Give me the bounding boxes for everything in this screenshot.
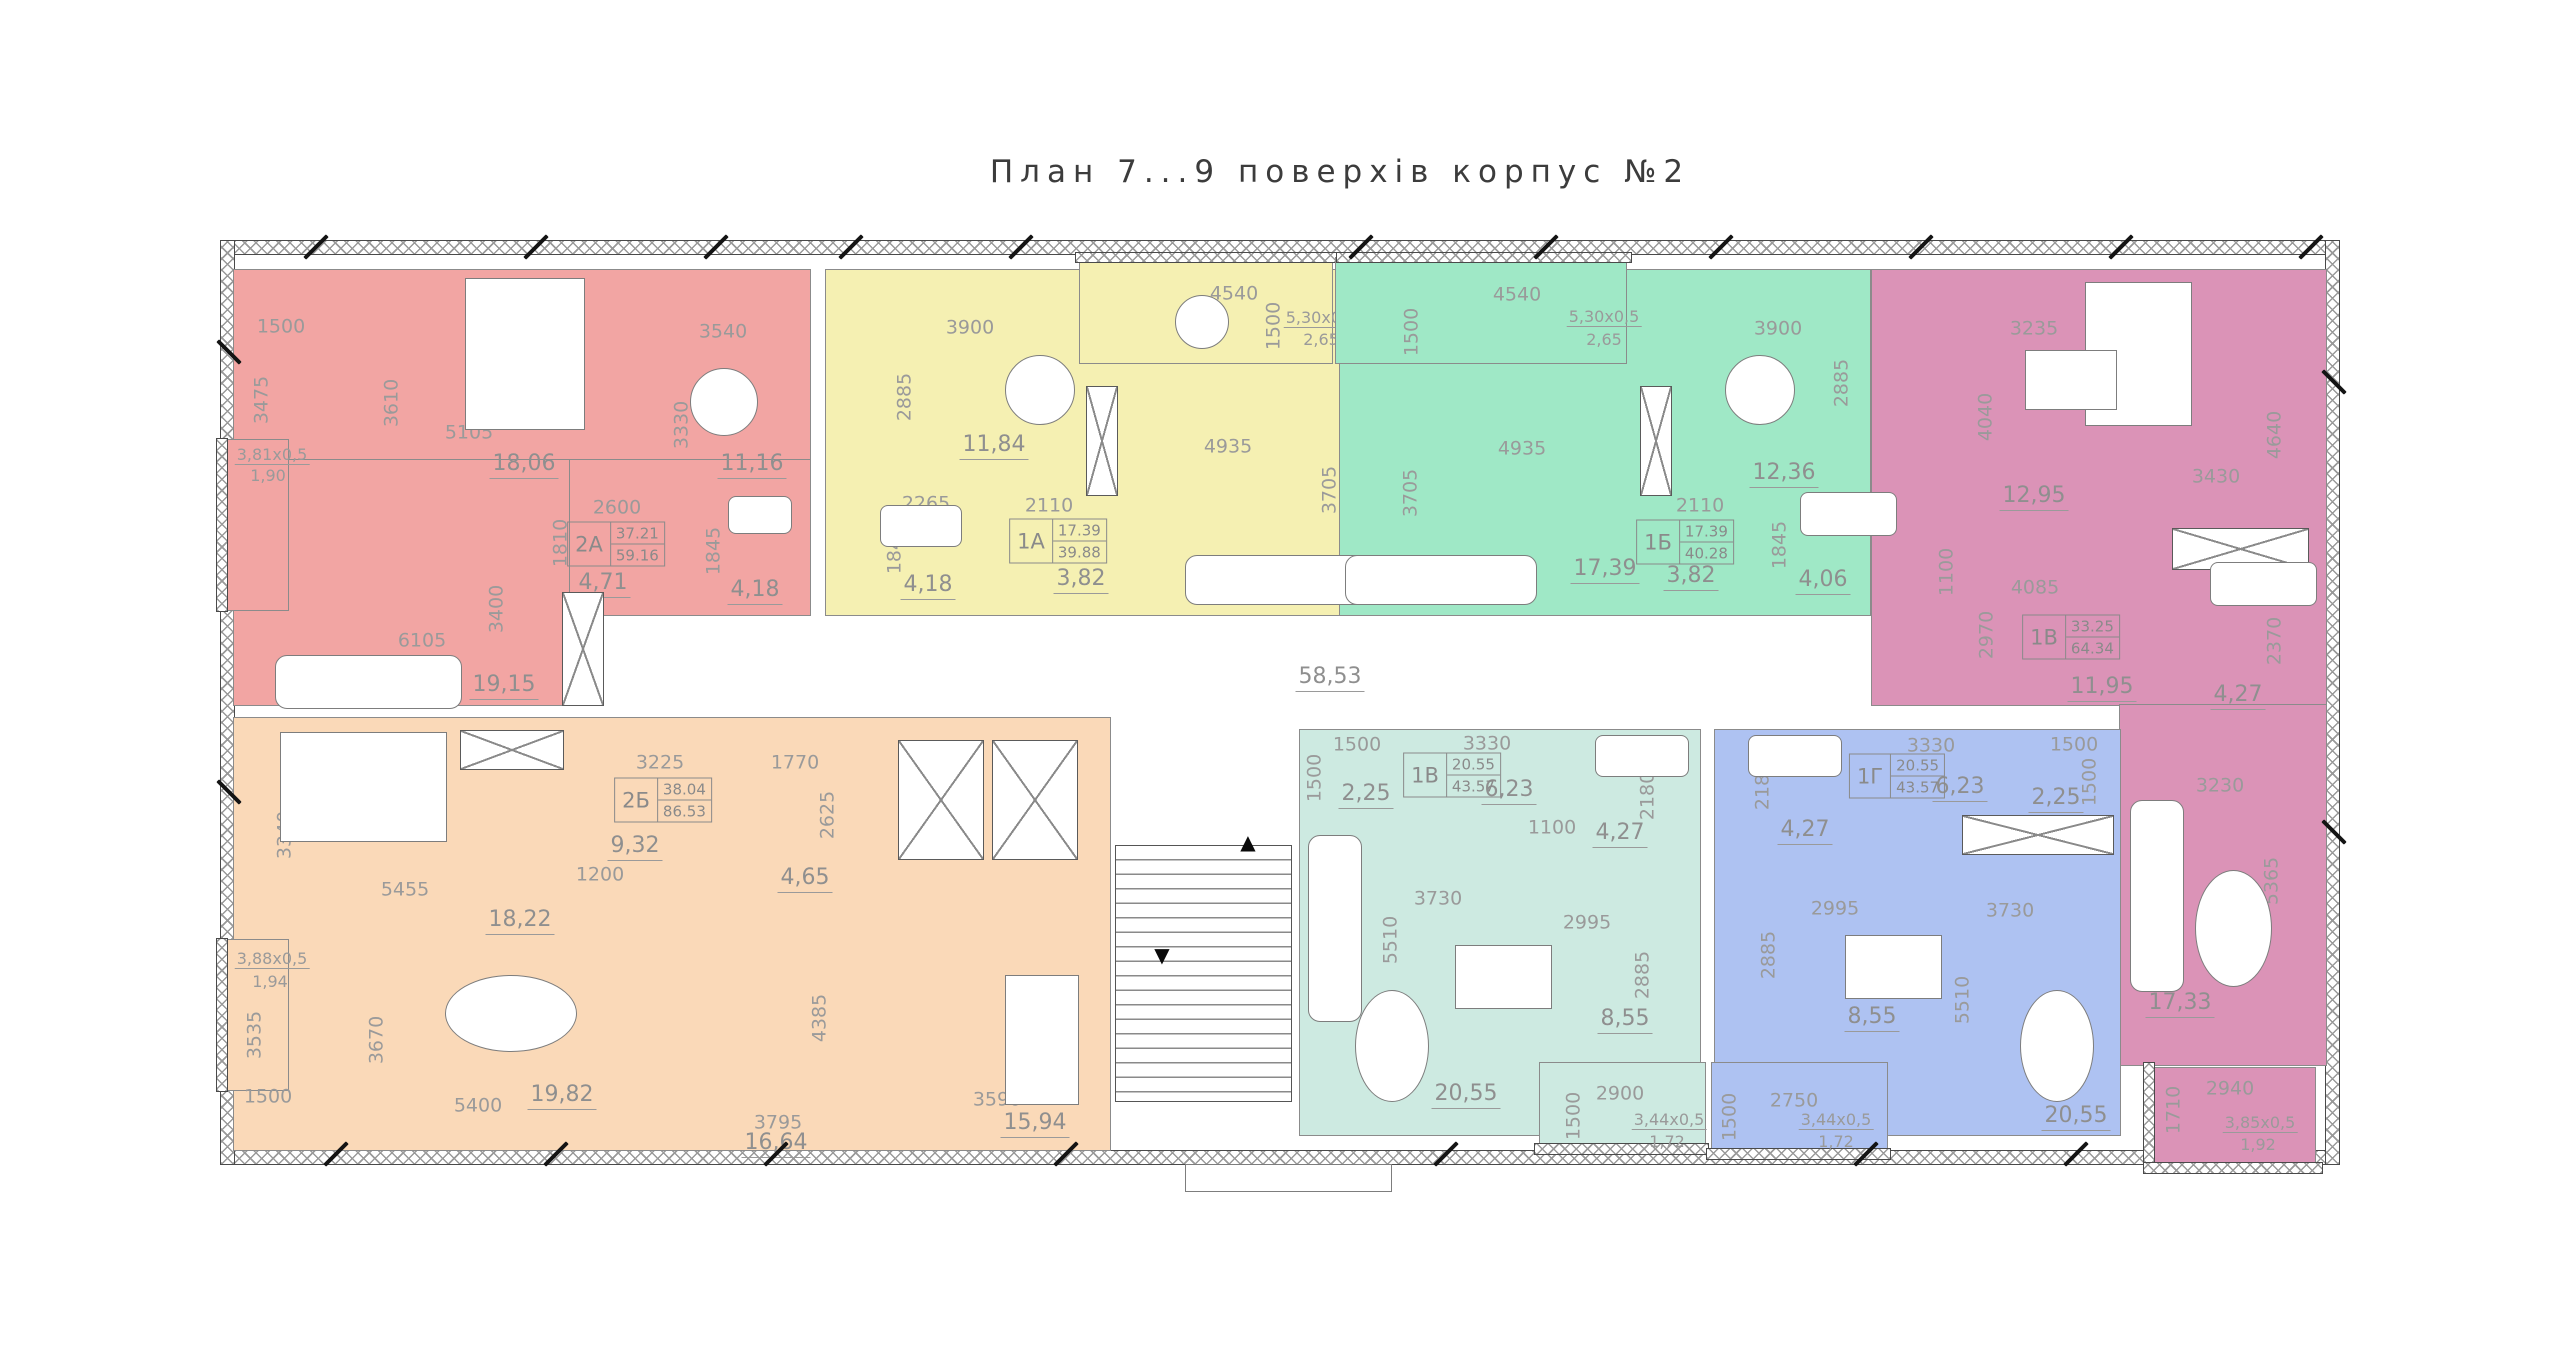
bathtub-symbol: [880, 505, 962, 547]
elevator-shaft: [992, 740, 1078, 860]
total-area-value: 86.53: [658, 801, 711, 822]
dim-label: 1500: [1721, 1093, 1740, 1141]
total-area-value: 39.88: [1053, 542, 1106, 563]
dim-label: 2995: [1811, 900, 1859, 919]
sofa-symbol: [2130, 800, 2184, 992]
room-area-label: 4,65: [778, 867, 833, 893]
dim-label: 2885: [896, 373, 915, 421]
dining-table-symbol: [1005, 975, 1079, 1105]
dim-label: 4640: [2266, 411, 2285, 459]
elevator-shaft: [898, 740, 984, 860]
room-area-label: 4,18: [728, 579, 783, 605]
bed-symbol: [280, 732, 447, 842]
balcony-wall: [1336, 252, 1632, 263]
dim-label: 3705: [1402, 469, 1421, 517]
dim-label: 6105: [398, 632, 446, 651]
dim-label: 1500: [1333, 736, 1381, 755]
dim-label: 1845: [1771, 521, 1790, 569]
apartment-id: 1Б: [1637, 521, 1679, 564]
room-area-label: 20,55: [1432, 1083, 1501, 1109]
balcony-size-label: 3,85x0,5: [2223, 1115, 2298, 1133]
room-area-label: 11,16: [718, 453, 787, 479]
table-symbol: [1175, 295, 1229, 349]
room-area-label: 20,55: [2042, 1105, 2111, 1131]
bed-symbol: [465, 278, 585, 430]
room-area-label: 12,36: [1750, 462, 1819, 488]
floor-plan-canvas: План 7...9 поверхів корпус №2 1500 3475 …: [0, 0, 2560, 1351]
table-symbol: [690, 368, 758, 436]
dim-label: 2180: [1639, 772, 1658, 820]
room-area-label: 4,27: [1778, 819, 1833, 845]
room-area-label: 8,55: [1598, 1008, 1653, 1034]
total-area-value: 59.16: [611, 545, 664, 566]
dim-label: 3235: [2010, 320, 2058, 339]
balcony-wall: [216, 438, 228, 612]
room-area-label: 4,27: [2211, 684, 2266, 710]
balcony-wall: [2143, 1062, 2155, 1174]
dim-label: 3225: [636, 754, 684, 773]
room-area-label: 4,18: [901, 574, 956, 600]
dim-label: 2940: [2206, 1080, 2254, 1099]
balcony-wall: [2143, 1162, 2323, 1174]
balcony-area-label: 2,65: [1303, 332, 1339, 348]
apartment-id: 1Г: [1850, 755, 1890, 798]
dim-label: 2970: [1978, 611, 1997, 659]
dim-label: 3900: [946, 319, 994, 338]
room-area-label: 4,06: [1796, 569, 1851, 595]
dim-label: 2885: [1833, 359, 1852, 407]
dim-label: 1770: [771, 754, 819, 773]
rug-symbol: [1355, 990, 1429, 1102]
dim-label: 1100: [1938, 548, 1957, 596]
total-area-value: 64.34: [2066, 638, 2119, 659]
dim-label: 2885: [1634, 951, 1653, 999]
balcony-size-label: 3,44x0,5: [1632, 1112, 1707, 1130]
apartment-1G-stat-box: 1Г 20.5543.57: [1849, 754, 1945, 799]
dim-label: 4085: [2011, 579, 2059, 598]
dim-label: 4540: [1493, 286, 1541, 305]
dim-label: 2370: [2266, 617, 2285, 665]
dim-label: 2750: [1770, 1092, 1818, 1111]
dining-table-symbol: [2025, 350, 2117, 410]
living-area-value: 20.55: [1447, 754, 1500, 776]
stairs-up-arrow-icon: ▲: [1240, 830, 1255, 854]
dim-label: 1500: [1265, 302, 1284, 350]
dim-label: 5455: [381, 881, 429, 900]
balcony-size-label: 3,81x0,5: [235, 447, 310, 465]
apartment-id: 1А: [1010, 520, 1052, 563]
total-area-value: 43.57: [1447, 776, 1500, 797]
dim-label: 5400: [454, 1097, 502, 1116]
living-area-value: 20.55: [1891, 755, 1944, 777]
vent-shaft: [1086, 386, 1118, 496]
rug-symbol: [2020, 990, 2094, 1102]
dining-table-symbol: [1845, 935, 1942, 999]
dim-label: 2110: [1025, 497, 1073, 516]
room-area-label: 2,25: [1339, 783, 1394, 809]
living-area-value: 17.39: [1053, 520, 1106, 542]
dim-label: 4385: [811, 994, 830, 1042]
dim-label: 2900: [1596, 1085, 1644, 1104]
room-area-label: 3,82: [1054, 568, 1109, 594]
dim-label: 1500: [257, 318, 305, 337]
dim-label: 3430: [2192, 468, 2240, 487]
wardrobe-symbol: [460, 730, 564, 770]
dim-label: 3230: [2196, 777, 2244, 796]
sofa-symbol: [275, 655, 462, 709]
apartment-1A-stat-box: 1А 17.3939.88: [1009, 519, 1107, 564]
dim-label: 3730: [1986, 902, 2034, 921]
room-area-label: 19,82: [528, 1084, 597, 1110]
living-area-value: 17.39: [1680, 521, 1733, 543]
apartment-2A-stat-box: 2А 37.2159.16: [567, 522, 665, 567]
room-area-label: 2,25: [2029, 787, 2084, 813]
rug-symbol: [2195, 870, 2272, 987]
dim-label: 3900: [1754, 320, 1802, 339]
corridor-area-label: 58,53: [1296, 666, 1365, 692]
dim-label: 3705: [1321, 466, 1340, 514]
apartment-1V-stat-box: 1В 33.2564.34: [2022, 615, 2120, 660]
bathtub-symbol: [2210, 562, 2317, 606]
apartment-id: 2Б: [615, 779, 657, 822]
dim-label: 3730: [1414, 890, 1462, 909]
balcony-size-label: 5,30x0,5: [1567, 309, 1642, 327]
balcony-area-label: 1,92: [2240, 1137, 2276, 1153]
apartment-id: 2А: [568, 523, 610, 566]
rug-symbol: [445, 975, 577, 1052]
balcony-area-label: 1,94: [252, 974, 288, 990]
dim-label: 1500: [2050, 736, 2098, 755]
apartment-1Vb-stat-box: 1В 20.5543.57: [1403, 753, 1501, 798]
dim-label: 2885: [1760, 931, 1779, 979]
room-area-label: 18,06: [490, 453, 559, 479]
dining-table-symbol: [1455, 945, 1552, 1009]
apartment-id: 1В: [2023, 616, 2065, 659]
room-area-label: 4,27: [1593, 822, 1648, 848]
room-area-label: 12,95: [2000, 485, 2069, 511]
dim-label: 3610: [383, 379, 402, 427]
living-area-value: 38.04: [658, 779, 711, 801]
entrance-stoop: [1185, 1164, 1392, 1192]
sofa-symbol: [1185, 555, 1372, 605]
wardrobe-symbol: [562, 592, 604, 706]
balcony-wall: [216, 938, 228, 1092]
balcony-area-label: 1,72: [1818, 1134, 1854, 1150]
table-symbol: [1005, 355, 1075, 425]
apartment-1B-stat-box: 1Б 17.3940.28: [1636, 520, 1734, 565]
dim-label: 1500: [1306, 754, 1325, 802]
room-area-label: 17,39: [1571, 558, 1640, 584]
dim-label: 1710: [2165, 1086, 2184, 1134]
dim-label: 5510: [1382, 916, 1401, 964]
total-area-value: 43.57: [1891, 777, 1944, 798]
dim-label: 2110: [1676, 497, 1724, 516]
balcony-area-label: 1,90: [250, 468, 286, 484]
dim-label: 4040: [1977, 393, 1996, 441]
room-area-label: 15,94: [1001, 1112, 1070, 1138]
sofa-symbol: [1345, 555, 1537, 605]
room-area-label: 9,32: [608, 835, 663, 861]
vent-shaft: [1640, 386, 1672, 496]
stairs-down-arrow-icon: ▼: [1154, 943, 1169, 967]
room-area-label: 8,55: [1845, 1006, 1900, 1032]
bathtub-symbol: [1595, 735, 1689, 777]
living-area-value: 33.25: [2066, 616, 2119, 638]
dim-label: 3535: [246, 1011, 265, 1059]
dim-label: 3330: [673, 401, 692, 449]
dim-label: 2625: [819, 791, 838, 839]
room-area-label: 11,95: [2068, 676, 2137, 702]
dim-label: 3540: [699, 323, 747, 342]
sofa-symbol: [1308, 835, 1362, 1022]
room-area-label: 18,22: [486, 909, 555, 935]
balcony-area-label: 1,72: [1649, 1134, 1685, 1150]
dim-label: 3670: [368, 1016, 387, 1064]
room-area-label: 11,84: [960, 434, 1029, 460]
balcony-size-label: 3,88x0,5: [235, 951, 310, 969]
table-symbol: [1725, 355, 1795, 425]
balcony-area-label: 2,65: [1586, 332, 1622, 348]
apartment-id: 1В: [1404, 754, 1446, 797]
total-area-value: 40.28: [1680, 543, 1733, 564]
balcony-size-label: 3,44x0,5: [1799, 1112, 1874, 1130]
balcony-wall: [1075, 252, 1337, 263]
dim-label: 1500: [244, 1088, 292, 1107]
dim-label: 5510: [1954, 976, 1973, 1024]
dim-label: 1200: [576, 866, 624, 885]
dim-label: 3330: [1463, 735, 1511, 754]
apartment-2B-stat-box: 2Б 38.0486.53: [614, 778, 712, 823]
page-title: План 7...9 поверхів корпус №2: [990, 154, 1690, 190]
dim-label: 1845: [705, 527, 724, 575]
room-area-label: 3,82: [1664, 565, 1719, 591]
dim-label: 2600: [593, 499, 641, 518]
dim-label: 1100: [1528, 819, 1576, 838]
dim-label: 3475: [253, 376, 272, 424]
staircase: [1115, 845, 1292, 1102]
dim-label: 1500: [1403, 308, 1422, 356]
bathtub-symbol: [728, 496, 792, 534]
living-area-value: 37.21: [611, 523, 664, 545]
room-area-label: 19,15: [470, 674, 539, 700]
outer-wall-bottom: [220, 1150, 2340, 1165]
wardrobe-symbol: [1962, 815, 2114, 855]
dim-label: 4935: [1498, 440, 1546, 459]
room-area-label: 17,33: [2146, 992, 2215, 1018]
bathtub-symbol: [1800, 492, 1897, 536]
dim-label: 3400: [488, 585, 507, 633]
dim-label: 2995: [1563, 914, 1611, 933]
dim-label: 4935: [1204, 438, 1252, 457]
dim-label: 1500: [1565, 1092, 1584, 1140]
bathtub-symbol: [1748, 735, 1842, 777]
